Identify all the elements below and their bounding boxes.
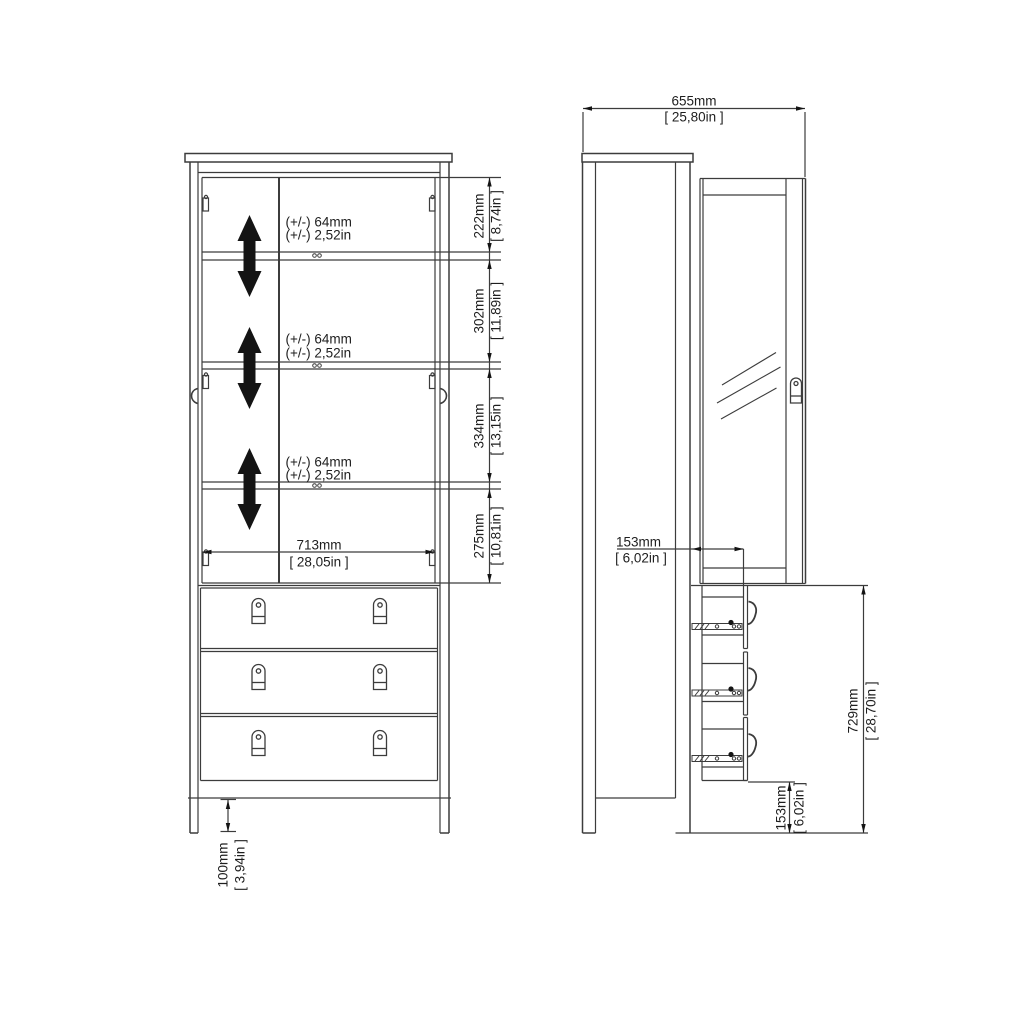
shelf-adjust-label-1-in: (+/-) 2,52in bbox=[286, 228, 352, 242]
shelf-pin-icons bbox=[313, 254, 322, 488]
dim-222mm-label: 222mm bbox=[472, 193, 486, 238]
front-view-drawers bbox=[201, 588, 438, 781]
dim-222mm-inch-label: [ 8,74in ] bbox=[489, 190, 503, 242]
shelf-adjust-label-2-mm: (+/-) 64mm bbox=[286, 332, 352, 346]
hinge-icons bbox=[203, 195, 435, 565]
technical-drawing: (+/-) 64mm (+/-) 2,52in (+/-) 64mm (+/-)… bbox=[0, 0, 1024, 1024]
dim-100mm-inch-label: [ 3,94in ] bbox=[233, 839, 247, 891]
dim-713mm-label: 713mm bbox=[296, 538, 341, 552]
drawer-slide-icons bbox=[692, 620, 742, 762]
dim-334mm-label: 334mm bbox=[472, 403, 486, 448]
dim-275mm-inch-label: [ 10,81in ] bbox=[489, 506, 503, 565]
glass-hatch-icon bbox=[717, 353, 781, 420]
dim-153mm-top-inch-label: [ 6,02in ] bbox=[615, 551, 667, 565]
dim-655mm-inch-label: [ 25,80in ] bbox=[664, 110, 723, 124]
dim-153mm-top-label: 153mm bbox=[616, 535, 661, 549]
shelf-adjust-arrow-icons bbox=[238, 215, 262, 530]
dim-153mm-bottom-inch-label: [ 6,02in ] bbox=[792, 782, 806, 834]
dim-729mm-inch-label: [ 28,70in ] bbox=[864, 681, 878, 740]
dim-655mm-label: 655mm bbox=[671, 94, 716, 108]
glass-door-profile bbox=[700, 179, 806, 584]
shelf-adjust-label-2-in: (+/-) 2,52in bbox=[286, 346, 352, 360]
side-view-outline bbox=[582, 154, 868, 834]
drawer-handle-icons bbox=[748, 602, 757, 757]
door-handle-icons bbox=[192, 389, 447, 404]
drawer-pull-icons bbox=[252, 599, 387, 756]
shelf-adjust-label-3-in: (+/-) 2,52in bbox=[286, 468, 352, 482]
drawing-linework bbox=[0, 0, 1024, 1024]
door-pull-icon bbox=[791, 378, 802, 403]
dim-153mm-bottom-label: 153mm bbox=[774, 785, 788, 830]
front-view-outline bbox=[185, 154, 501, 834]
dim-713mm-inch-label: [ 28,05in ] bbox=[289, 555, 348, 569]
dim-334mm-inch-label: [ 13,15in ] bbox=[489, 396, 503, 455]
dim-302mm-inch-label: [ 11,89in ] bbox=[489, 282, 503, 340]
dim-100mm-label: 100mm bbox=[216, 842, 230, 887]
dim-302mm-label: 302mm bbox=[472, 288, 486, 333]
dim-275mm-label: 275mm bbox=[472, 513, 486, 558]
side-view-drawers bbox=[691, 586, 868, 781]
dim-729mm-label: 729mm bbox=[846, 688, 860, 733]
side-view-dimensions bbox=[583, 106, 866, 833]
